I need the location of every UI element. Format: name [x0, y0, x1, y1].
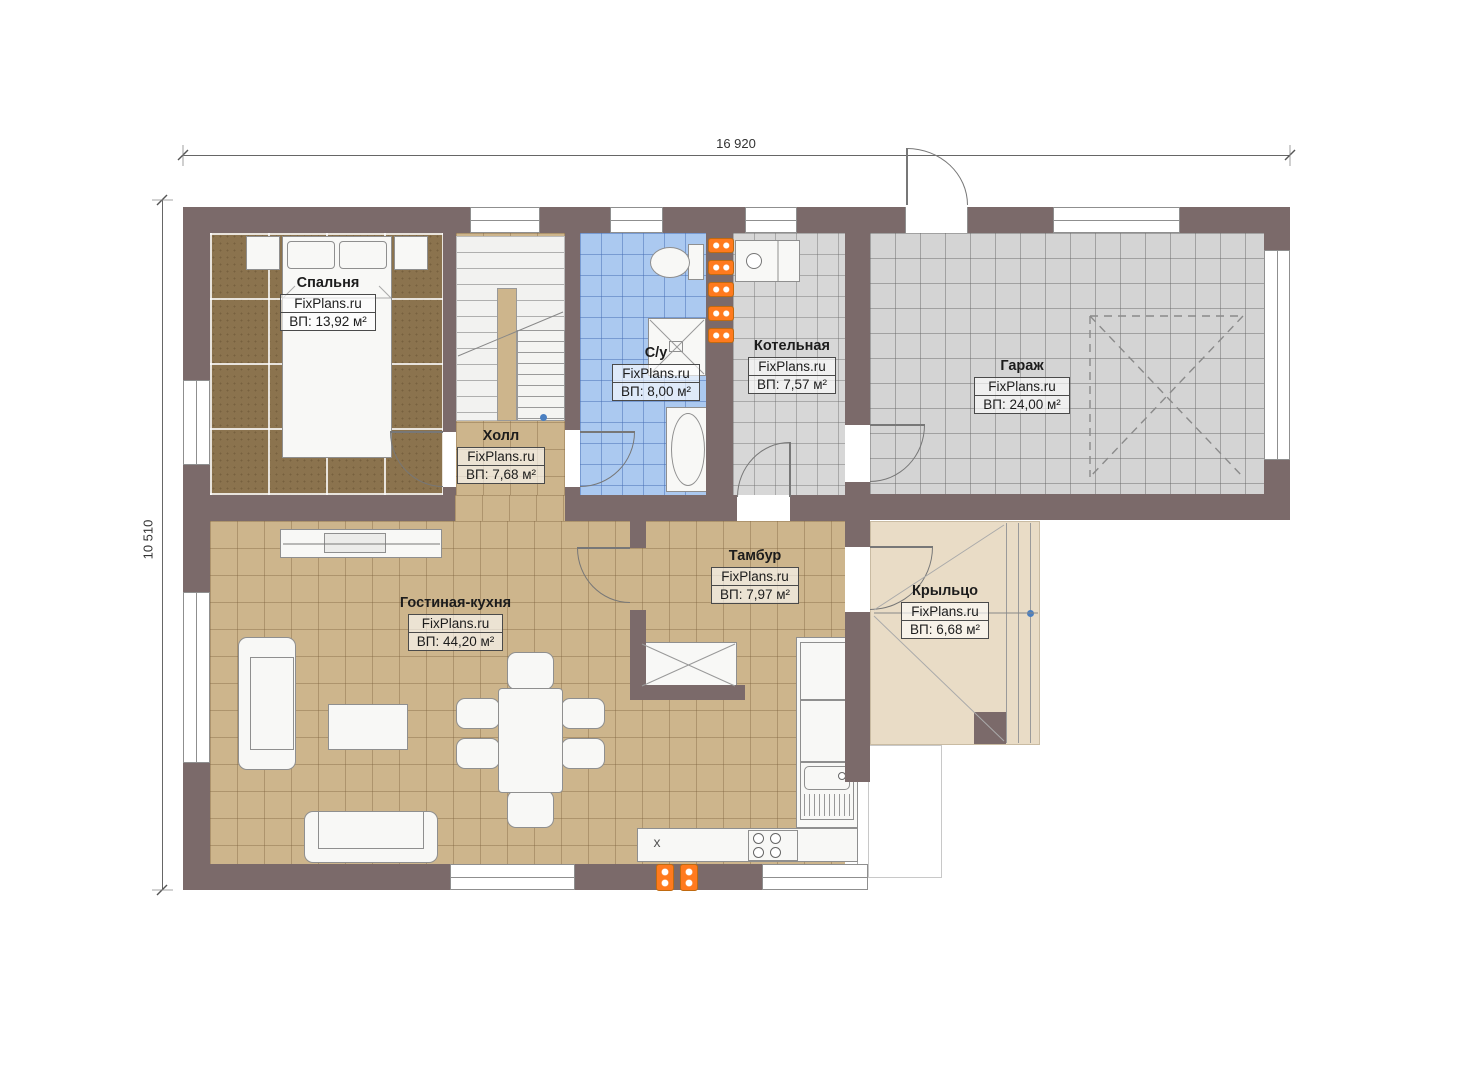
wall-boiler-tambour: [790, 495, 870, 521]
room-label-box: FixPlans.ru ВП: 7,68 м²: [457, 447, 545, 484]
stove-burner: [753, 847, 764, 858]
sofa-seat: [250, 657, 294, 750]
stove-burner: [770, 833, 781, 844]
radiator: [708, 260, 734, 275]
terrace-outline: [868, 745, 942, 878]
window: [610, 207, 663, 233]
room-name: Тамбур: [703, 548, 807, 564]
window: [470, 207, 540, 233]
chair: [456, 698, 500, 729]
brand-label: FixPlans.ru: [281, 295, 375, 312]
radiator: [708, 306, 734, 321]
marker-dot: [1027, 610, 1034, 617]
chair: [507, 790, 554, 828]
porch-step-line: [1030, 523, 1031, 743]
radiator: [680, 864, 698, 891]
stair-stringer: [497, 288, 517, 421]
wardrobe: [640, 642, 737, 688]
toilet-tank: [688, 244, 704, 280]
room-label-bedroom: Спальня FixPlans.ru ВП: 13,92 м²: [268, 275, 388, 331]
room-name: Котельная: [740, 338, 844, 354]
room-name: Гостиная-кухня: [393, 595, 518, 611]
tv-screen: [324, 533, 386, 553]
wall-hall-bath: [565, 487, 580, 495]
tambour-living-door-leaf: [577, 547, 630, 549]
wall-boiler-garage: [845, 482, 870, 494]
stair-steps: [517, 330, 565, 421]
window: [183, 592, 210, 763]
area-label: ВП: 8,00 м²: [613, 382, 699, 400]
area-label: ВП: 44,20 м²: [409, 632, 503, 650]
area-label: ВП: 24,00 м²: [975, 395, 1069, 413]
room-label-box: FixPlans.ru ВП: 13,92 м²: [280, 294, 376, 331]
floor-plan: 16 920 10 510 x: [0, 0, 1474, 1080]
window: [1053, 207, 1180, 233]
room-label-hall: Холл FixPlans.ru ВП: 7,68 м²: [452, 428, 550, 484]
chair: [456, 738, 500, 769]
wall-bath-tambour: [565, 495, 737, 521]
marker-dot: [540, 414, 547, 421]
window: [762, 864, 868, 890]
brand-label: FixPlans.ru: [975, 378, 1069, 395]
room-label-garage: Гараж FixPlans.ru ВП: 24,00 м²: [968, 358, 1076, 414]
chair: [561, 698, 605, 729]
dimension-line-left: [162, 200, 163, 890]
room-label-box: FixPlans.ru ВП: 7,97 м²: [711, 567, 799, 604]
boiler-counter: [735, 240, 800, 282]
wall-living-tambour: [630, 521, 646, 548]
room-label-box: FixPlans.ru ВП: 24,00 м²: [974, 377, 1070, 414]
bedroom-door-leaf: [390, 431, 443, 433]
room-name: Спальня: [268, 275, 388, 291]
area-label: ВП: 6,68 м²: [902, 620, 988, 638]
room-label-box: FixPlans.ru ВП: 7,57 м²: [748, 357, 836, 394]
porch-step-line: [1018, 523, 1019, 743]
stove-burner: [770, 847, 781, 858]
wall-bedroom-bottom: [183, 495, 455, 521]
room-label-boiler: Котельная FixPlans.ru ВП: 7,57 м²: [740, 338, 844, 394]
porch-column: [974, 712, 1006, 744]
wall-hall-bath: [565, 233, 580, 430]
entrance-door-leaf: [906, 148, 908, 205]
dimension-width-label: 16 920: [686, 136, 786, 151]
radiator: [708, 282, 734, 297]
nightstand: [246, 236, 280, 270]
room-name: Крыльцо: [893, 583, 997, 599]
door-gap: [845, 547, 870, 612]
tambour-porch-door-leaf: [870, 546, 933, 548]
dimension-line-top: [183, 155, 1290, 156]
pillow: [287, 241, 335, 269]
porch-step-line: [1006, 523, 1007, 743]
garage-door-leaf: [870, 424, 925, 426]
room-name: Гараж: [968, 358, 1076, 374]
bathroom-door-leaf: [580, 431, 635, 433]
chair: [561, 738, 605, 769]
area-label: ВП: 7,97 м²: [712, 585, 798, 603]
wall-tambour-porch: [845, 520, 870, 547]
entrance-door-opening: [905, 207, 968, 233]
room-label-box: FixPlans.ru ВП: 6,68 м²: [901, 602, 989, 639]
room-label-tambour: Тамбур FixPlans.ru ВП: 7,97 м²: [703, 548, 807, 604]
nightstand: [394, 236, 428, 270]
radiator: [656, 864, 674, 891]
area-label: ВП: 13,92 м²: [281, 312, 375, 330]
radiator: [708, 328, 734, 343]
brand-label: FixPlans.ru: [712, 568, 798, 585]
window: [450, 864, 575, 890]
brand-label: FixPlans.ru: [409, 615, 503, 632]
room-name: Холл: [452, 428, 550, 444]
brand-label: FixPlans.ru: [749, 358, 835, 375]
wall-living-tambour: [630, 610, 646, 685]
wall-bedroom-hall: [443, 233, 456, 432]
window: [745, 207, 797, 233]
window: [183, 380, 210, 465]
wall-tambour-porch: [845, 612, 870, 782]
coffee-table: [328, 704, 408, 750]
brand-label: FixPlans.ru: [613, 365, 699, 382]
boiler-door-leaf: [789, 442, 791, 497]
bathtub-basin: [671, 413, 705, 486]
room-label-living: Гостиная-кухня FixPlans.ru ВП: 44,20 м²: [393, 595, 518, 651]
area-label: ВП: 7,57 м²: [749, 375, 835, 393]
chair: [507, 652, 554, 690]
room-label-box: FixPlans.ru ВП: 8,00 м²: [612, 364, 700, 401]
wall-garage-bottom: [845, 494, 1290, 520]
sink-drainer: [804, 794, 850, 816]
area-label: ВП: 7,68 м²: [458, 465, 544, 483]
wall-boiler-garage: [845, 207, 870, 425]
stove-burner: [753, 833, 764, 844]
wall-bedroom-hall: [443, 487, 456, 495]
dining-table: [498, 688, 563, 793]
garage-gate: [1264, 250, 1290, 460]
dimension-height-label: 10 510: [141, 500, 156, 580]
wall-left: [183, 207, 210, 890]
toilet-bowl: [650, 247, 690, 278]
boiler-sink: [746, 253, 762, 269]
door-gap: [565, 430, 580, 487]
wall-tambour-kitchen: [630, 685, 745, 700]
pillow: [339, 241, 387, 269]
room-label-bathroom: С/у FixPlans.ru ВП: 8,00 м²: [605, 345, 707, 401]
bed: [282, 236, 392, 458]
sofa-seat: [318, 811, 424, 849]
brand-label: FixPlans.ru: [458, 448, 544, 465]
room-label-porch: Крыльцо FixPlans.ru ВП: 6,68 м²: [893, 583, 997, 639]
radiator: [708, 238, 734, 253]
brand-label: FixPlans.ru: [902, 603, 988, 620]
room-name: С/у: [605, 345, 707, 361]
room-label-box: FixPlans.ru ВП: 44,20 м²: [408, 614, 504, 651]
door-gap: [845, 425, 870, 482]
washer-mark: x: [642, 834, 672, 850]
entrance-door-arc: [907, 148, 968, 205]
